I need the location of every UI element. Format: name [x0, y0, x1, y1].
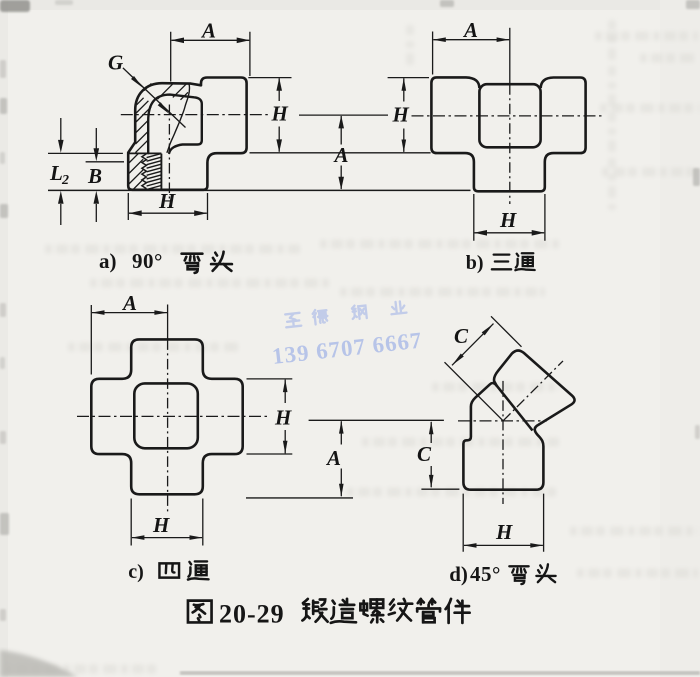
svg-text:A: A	[462, 18, 478, 42]
svg-text:d): d)	[449, 562, 468, 586]
svg-text:c): c)	[128, 561, 144, 583]
svg-text:L: L	[49, 161, 63, 185]
svg-text:90°: 90°	[132, 249, 163, 273]
svg-text:A: A	[333, 143, 349, 167]
svg-text:a): a)	[99, 249, 117, 273]
svg-text:H: H	[271, 102, 289, 126]
svg-text:A: A	[200, 19, 216, 43]
svg-text:45°: 45°	[470, 562, 501, 586]
svg-text:G: G	[108, 51, 123, 75]
svg-text:H: H	[152, 513, 170, 537]
svg-text:H: H	[158, 189, 176, 213]
svg-text:A: A	[325, 446, 341, 470]
svg-text:20-29: 20-29	[219, 600, 285, 629]
svg-text:A: A	[121, 291, 137, 315]
svg-text:b): b)	[466, 252, 484, 274]
svg-text:H: H	[274, 406, 292, 430]
svg-text:B: B	[87, 164, 102, 188]
svg-text:C: C	[417, 442, 432, 466]
svg-text:H: H	[499, 208, 517, 232]
svg-text:C: C	[454, 324, 469, 348]
svg-text:H: H	[495, 520, 513, 544]
svg-text:H: H	[392, 103, 410, 127]
svg-text:2: 2	[61, 173, 69, 188]
